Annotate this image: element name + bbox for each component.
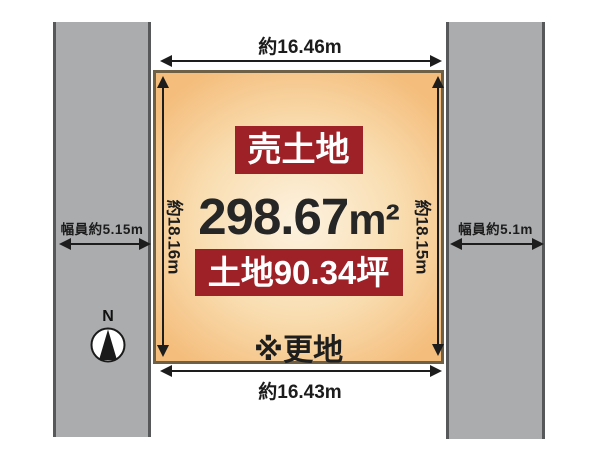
compass-north-label: N — [102, 308, 114, 326]
land-plot-diagram: 幅員約5.15m 幅員約5.1m 売土地 298.67m² 土地90.34坪 ※… — [0, 0, 600, 468]
dimension-top-arrow — [162, 60, 440, 62]
parcel-area-value: 298.67 — [198, 188, 348, 245]
dimension-right-label: 約18.15m — [412, 200, 437, 275]
tsubo-badge: 土地90.34坪 — [195, 249, 403, 296]
dimension-right-arrow — [437, 78, 439, 354]
road-right-width-label: 幅員約5.1m — [449, 218, 542, 238]
north-compass: N — [88, 308, 128, 366]
sale-badge: 売土地 — [235, 126, 363, 174]
dimension-bottom-arrow — [162, 370, 440, 372]
parcel-area: 298.67m² — [156, 187, 441, 246]
road-left-width-arrow — [61, 243, 149, 245]
dimension-bottom-label: 約16.43m — [0, 377, 600, 404]
dimension-top-label: 約16.46m — [0, 32, 600, 59]
road-left: 幅員約5.15m — [53, 22, 151, 437]
compass-icon — [88, 325, 128, 365]
road-left-width-label: 幅員約5.15m — [56, 218, 148, 238]
land-parcel: 売土地 298.67m² 土地90.34坪 ※更地 — [153, 70, 444, 364]
parcel-area-unit: m² — [348, 196, 399, 244]
dimension-left-label: 約18.16m — [164, 200, 189, 275]
vacant-lot-note: ※更地 — [156, 325, 441, 369]
road-right-width-arrow — [452, 243, 542, 245]
